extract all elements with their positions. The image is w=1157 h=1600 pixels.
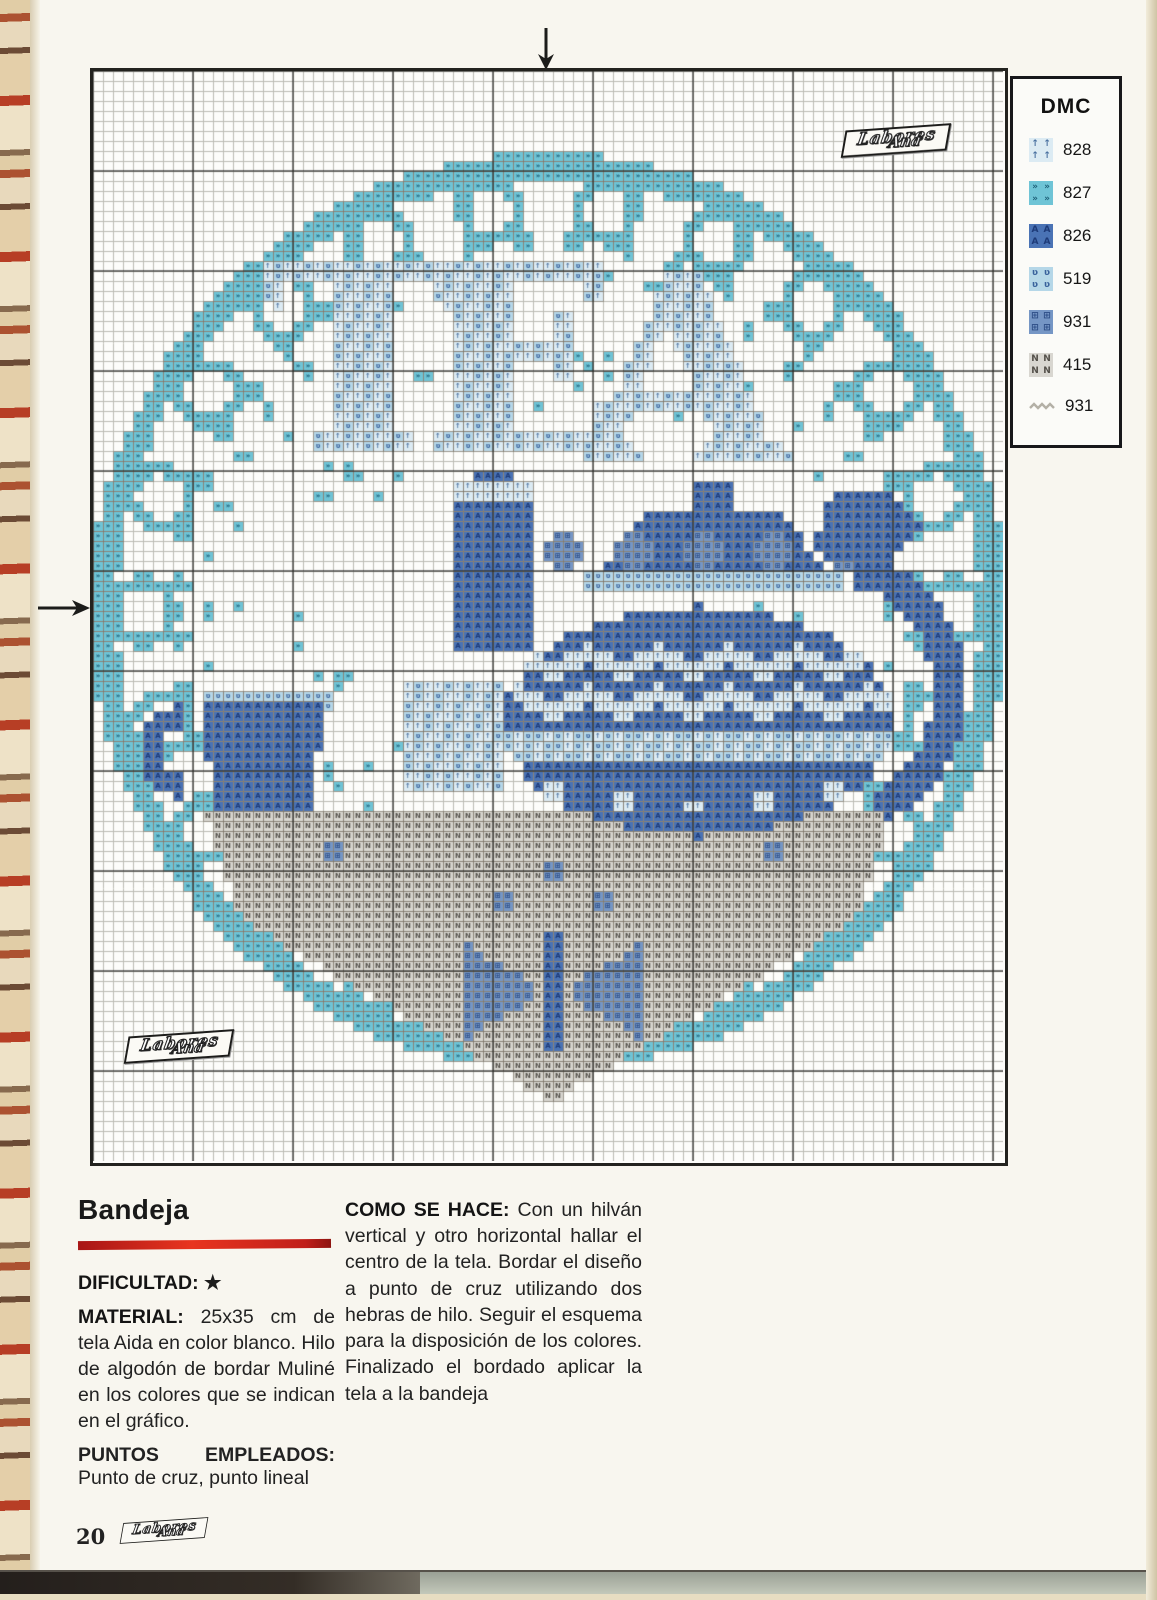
legend-entry: AAAA826 xyxy=(1029,224,1119,248)
stitch-symbol-cell: N xyxy=(1041,353,1053,365)
legend-entry: »»»»827 xyxy=(1029,181,1119,205)
stitch-symbol-cell: ↑ xyxy=(1041,150,1053,162)
page-number: 20 xyxy=(76,1524,105,1549)
backstitch-line-swatch xyxy=(1029,400,1055,412)
legend-title: DMC xyxy=(1013,95,1119,119)
howto-text: Con un hilván vertical y otro horizontal… xyxy=(345,1199,642,1405)
stitches-label: PUNTOS EMPLEADOS: xyxy=(78,1444,335,1467)
page-right-edge xyxy=(1146,0,1157,1600)
stitch-symbol-cell: ʋ xyxy=(1041,267,1053,279)
dmc-code: 931 xyxy=(1065,396,1093,416)
stitch-symbol-cell: ↑ xyxy=(1041,138,1053,150)
footer-bar-dark xyxy=(0,1572,420,1594)
magazine-page: Labores Ana Labores Ana DMC ↑↑↑↑828»»»»8… xyxy=(0,0,1157,1600)
stitch-symbol-cell: A xyxy=(1029,224,1041,236)
stitch-symbol-cell: A xyxy=(1041,224,1053,236)
stitch-symbol-cell: N xyxy=(1029,365,1041,377)
stitches-block: PUNTOS EMPLEADOS: Punto de cruz, punto l… xyxy=(78,1444,335,1490)
stitch-symbol-cell: A xyxy=(1041,236,1053,248)
stitch-symbol-cell: » xyxy=(1041,181,1053,193)
difficulty-star: ★ xyxy=(204,1272,221,1294)
stitch-symbol-cell: » xyxy=(1029,181,1041,193)
stitch-swatch: AAAA xyxy=(1029,224,1053,248)
legend-entry: ʋʋʋʋ519 xyxy=(1029,267,1119,291)
legend-entry: NNNN415 xyxy=(1029,353,1119,377)
stitch-symbol-cell: ⊞ xyxy=(1029,310,1041,322)
stitch-symbol-cell: ʋ xyxy=(1041,279,1053,291)
difficulty-line: DIFICULTAD: ★ xyxy=(78,1271,222,1295)
stitch-symbol-cell: N xyxy=(1029,353,1041,365)
book-spine-edge xyxy=(0,0,30,1600)
dmc-code: 519 xyxy=(1063,269,1091,289)
stitch-symbol-cell: A xyxy=(1029,236,1041,248)
dmc-code: 826 xyxy=(1063,226,1091,246)
footer-bar-light xyxy=(420,1572,1157,1594)
dmc-code: 415 xyxy=(1063,355,1091,375)
stitch-symbol-cell: » xyxy=(1029,193,1041,205)
legend-entry: 931 xyxy=(1029,396,1119,416)
stitch-symbol-cell: ʋ xyxy=(1029,267,1041,279)
difficulty-label: DIFICULTAD: xyxy=(78,1272,199,1294)
stitch-swatch: ↑↑↑↑ xyxy=(1029,138,1053,162)
stitch-swatch: »»»» xyxy=(1029,181,1053,205)
stitch-symbol-cell: ⊞ xyxy=(1041,322,1053,334)
article-title: Bandeja xyxy=(78,1194,189,1226)
stitch-swatch: ⊞⊞⊞⊞ xyxy=(1029,310,1053,334)
cross-stitch-chart xyxy=(90,68,1008,1166)
legend-entry: ↑↑↑↑828 xyxy=(1029,138,1119,162)
stitch-symbol-cell: ʋ xyxy=(1029,279,1041,291)
howto-label: COMO SE HACE: xyxy=(345,1199,509,1221)
stitch-symbol-cell: ↑ xyxy=(1029,138,1041,150)
stitch-symbol-cell: » xyxy=(1041,193,1053,205)
stitch-swatch: ʋʋʋʋ xyxy=(1029,267,1053,291)
stitches-text: Punto de cruz, punto lineal xyxy=(78,1467,335,1490)
stitch-symbol-cell: ⊞ xyxy=(1029,322,1041,334)
stitch-symbol-cell: ⊞ xyxy=(1041,310,1053,322)
title-underline-bar xyxy=(78,1239,331,1250)
dmc-code: 827 xyxy=(1063,183,1091,203)
stitch-symbol-cell: N xyxy=(1041,365,1053,377)
legend-entries: ↑↑↑↑828»»»»827AAAA826ʋʋʋʋ519⊞⊞⊞⊞931NNNN4… xyxy=(1013,138,1119,416)
material-label: MATERIAL: xyxy=(78,1306,184,1328)
page-gutter xyxy=(30,0,40,1600)
page-bottom-edge xyxy=(0,1594,1157,1600)
legend-entry: ⊞⊞⊞⊞931 xyxy=(1029,310,1119,334)
howto-paragraph: COMO SE HACE: Con un hilván vertical y o… xyxy=(345,1197,642,1407)
center-arrow-down-icon xyxy=(536,26,556,70)
center-arrow-right-icon xyxy=(36,598,90,618)
stitch-symbol-cell: ↑ xyxy=(1029,150,1041,162)
dmc-code: 828 xyxy=(1063,140,1091,160)
stitch-swatch: NNNN xyxy=(1029,353,1053,377)
dmc-code: 931 xyxy=(1063,312,1091,332)
dmc-color-legend: DMC ↑↑↑↑828»»»»827AAAA826ʋʋʋʋ519⊞⊞⊞⊞931N… xyxy=(1010,76,1122,448)
labores-ana-logo: Labores Ana xyxy=(120,1517,209,1544)
material-paragraph: MATERIAL: 25x35 cm de tela Aida en color… xyxy=(78,1305,335,1435)
stitch-grid-canvas xyxy=(93,71,1003,1161)
